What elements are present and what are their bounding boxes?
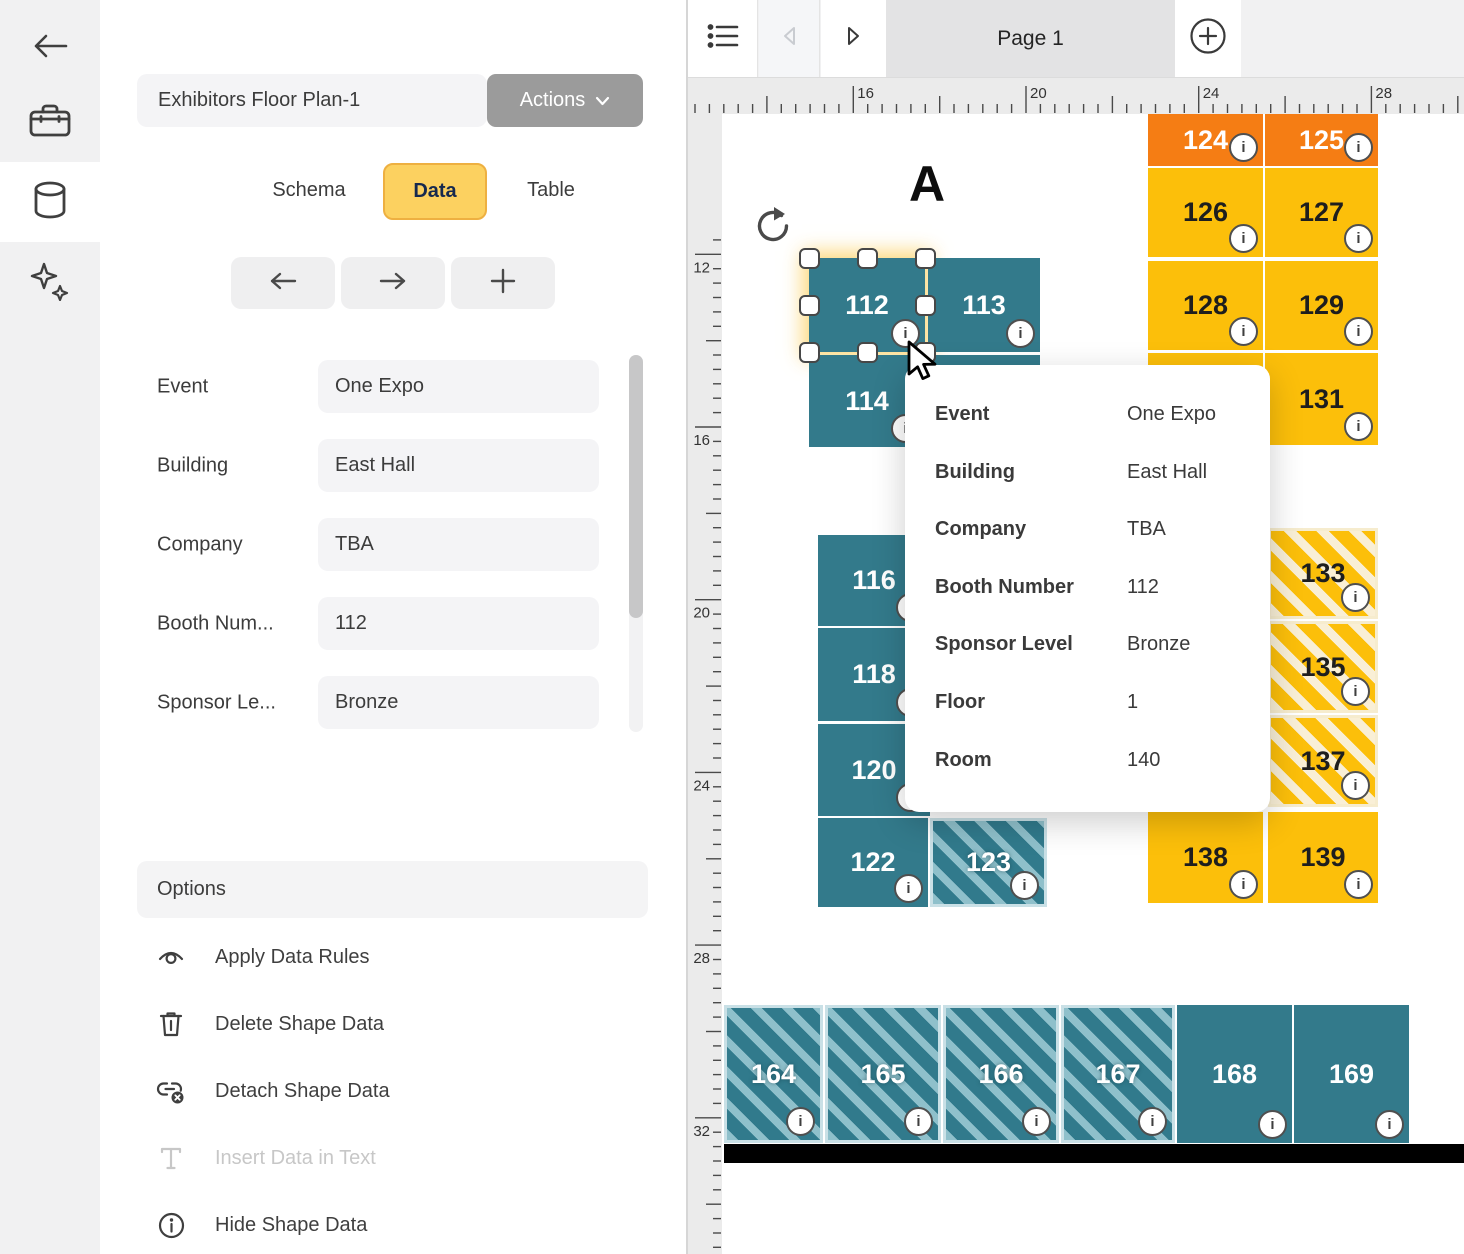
toolbox-icon	[26, 102, 74, 143]
booth-info-icon[interactable]: i	[1344, 133, 1373, 162]
field-row: CompanyTBA	[100, 518, 686, 571]
booth-info-icon[interactable]: i	[1006, 319, 1035, 348]
tooltip-label: Booth Number	[935, 576, 1074, 599]
tooltip-row: BuildingEast Hall	[905, 461, 1270, 491]
tooltip-value: One Expo	[1127, 403, 1216, 426]
booth-number: 135	[1300, 652, 1345, 683]
booth-number: 124	[1183, 125, 1228, 156]
sparkles-icon	[29, 261, 71, 306]
booth-165[interactable]: 165i	[825, 1005, 941, 1143]
previous-record-button[interactable]	[231, 257, 335, 309]
detach-link-icon	[155, 1075, 187, 1107]
tooltip-row: Sponsor LevelBronze	[905, 633, 1270, 663]
booth-number: 138	[1183, 842, 1228, 873]
tooltip-label: Room	[935, 749, 992, 772]
tooltip-value: 1	[1127, 691, 1138, 714]
sidebar-item-shapes[interactable]	[0, 82, 100, 162]
booth-number: 165	[860, 1059, 905, 1090]
tooltip-row: Booth Number112	[905, 576, 1270, 606]
selection-handle[interactable]	[857, 342, 878, 363]
selection-handle[interactable]	[915, 295, 936, 316]
database-icon	[29, 179, 71, 226]
booth-number: 139	[1300, 842, 1345, 873]
booth-number: 137	[1300, 746, 1345, 777]
tooltip-label: Floor	[935, 691, 985, 714]
next-record-button[interactable]	[341, 257, 445, 309]
booth-info-icon[interactable]: i	[1229, 224, 1258, 253]
booth-169[interactable]: 169i	[1294, 1005, 1409, 1143]
booth-number: 118	[852, 659, 896, 690]
tooltip-value: East Hall	[1127, 461, 1207, 484]
booth-info-icon[interactable]: i	[904, 1107, 933, 1136]
booth-info-icon[interactable]: i	[1344, 224, 1373, 253]
tooltip-label: Sponsor Level	[935, 633, 1073, 656]
booth-number: 127	[1299, 197, 1344, 228]
field-value-input[interactable]: One Expo	[318, 360, 599, 413]
booth-info-icon[interactable]: i	[1375, 1110, 1404, 1139]
wall-line[interactable]	[724, 1144, 1464, 1163]
dataset-title-input[interactable]: Exhibitors Floor Plan-1	[137, 74, 487, 127]
booth-123[interactable]: 123i	[930, 818, 1047, 907]
booth-166[interactable]: 166i	[943, 1005, 1059, 1143]
booth-number: 112	[845, 290, 889, 321]
field-row: EventOne Expo	[100, 360, 686, 413]
booth-164[interactable]: 164i	[724, 1005, 823, 1143]
booth-info-icon[interactable]: i	[1138, 1107, 1167, 1136]
selection-handle[interactable]	[857, 248, 878, 269]
field-label: Sponsor Le...	[157, 691, 276, 714]
booth-info-icon[interactable]: i	[1258, 1110, 1287, 1139]
selection-handle[interactable]	[799, 342, 820, 363]
previous-page-button[interactable]	[759, 0, 820, 77]
booth-125[interactable]: 125i	[1265, 114, 1378, 166]
next-page-button[interactable]	[821, 0, 886, 77]
svg-text:28: 28	[693, 950, 710, 967]
tooltip-value: Bronze	[1127, 633, 1190, 656]
field-value-input[interactable]: East Hall	[318, 439, 599, 492]
booth-124[interactable]: 124i	[1148, 114, 1263, 166]
mouse-cursor-icon	[901, 339, 941, 388]
triangle-left-icon	[781, 26, 797, 51]
booth-number: 131	[1299, 384, 1344, 415]
field-row: Booth Num...112	[100, 597, 686, 650]
booth-number: 129	[1299, 290, 1344, 321]
booth-info-icon[interactable]: i	[1344, 317, 1373, 346]
floor-plan-page[interactable]: A EventOne ExpoBuildingEast HallCompanyT…	[722, 114, 1464, 1254]
booth-138[interactable]: 138i	[1148, 812, 1263, 903]
selection-handle[interactable]	[799, 295, 820, 316]
vertical-ruler: 121620242832	[688, 114, 722, 1254]
booth-info-icon[interactable]: i	[894, 874, 923, 903]
tab-table[interactable]: Table	[520, 162, 582, 219]
booth-113[interactable]: 113i	[928, 258, 1040, 352]
dataset-title: Exhibitors Floor Plan-1	[158, 89, 360, 112]
horizontal-ruler: 16202428	[688, 78, 1464, 114]
svg-text:32: 32	[693, 1123, 710, 1140]
svg-text:24: 24	[693, 777, 710, 794]
svg-text:24: 24	[1203, 85, 1220, 102]
info-circle-icon	[155, 1209, 187, 1241]
tooltip-row: Floor1	[905, 691, 1270, 721]
tooltip-value: TBA	[1127, 518, 1166, 541]
tooltip-label: Building	[935, 461, 1015, 484]
booth-number: 113	[962, 290, 1006, 321]
canvas-area: Page 1 16202428 121620242832 A EventOne …	[688, 0, 1464, 1254]
tooltip-value: 112	[1127, 576, 1159, 599]
text-t-icon	[155, 1142, 187, 1174]
add-page-button[interactable]	[1175, 0, 1241, 77]
booth-127[interactable]: 127i	[1265, 168, 1378, 257]
field-value-input[interactable]: Bronze	[318, 676, 599, 729]
booth-number: 169	[1329, 1059, 1374, 1090]
booth-info-icon[interactable]: i	[1341, 677, 1370, 706]
sidebar-item-magic[interactable]	[0, 243, 100, 323]
trash-icon	[155, 1008, 187, 1040]
data-rules-eye-icon	[155, 941, 187, 973]
rotate-handle-icon[interactable]	[754, 206, 794, 253]
panel-scrollbar-thumb[interactable]	[629, 355, 643, 618]
option-detach-shape-data[interactable]: Detach Shape Data	[100, 1071, 640, 1111]
booth-info-icon[interactable]: i	[1344, 412, 1373, 441]
booth-info-icon[interactable]: i	[1341, 583, 1370, 612]
svg-text:28: 28	[1375, 85, 1392, 102]
booth-number: 122	[850, 847, 895, 878]
record-nav	[100, 257, 686, 309]
zone-label: A	[897, 155, 957, 213]
tooltip-row: EventOne Expo	[905, 403, 1270, 433]
tooltip-row: Room140	[905, 749, 1270, 779]
booth-128[interactable]: 128i	[1148, 261, 1263, 350]
tooltip-label: Company	[935, 518, 1026, 541]
tab-schema[interactable]: Schema	[265, 162, 353, 219]
page-list-icon	[707, 23, 739, 54]
booth-number: 133	[1300, 558, 1345, 589]
svg-text:16: 16	[857, 85, 874, 102]
tooltip-label: Event	[935, 403, 989, 426]
booth-number: 164	[751, 1059, 796, 1090]
booth-info-icon[interactable]: i	[786, 1107, 815, 1136]
booth-129[interactable]: 129i	[1265, 261, 1378, 350]
field-label: Company	[157, 533, 243, 556]
svg-text:20: 20	[1030, 85, 1047, 102]
field-value-input[interactable]: TBA	[318, 518, 599, 571]
field-value-input[interactable]: 112	[318, 597, 599, 650]
booth-info-icon[interactable]: i	[1229, 317, 1258, 346]
selection-handle[interactable]	[799, 248, 820, 269]
panel-tabs: SchemaDataTable	[100, 160, 686, 220]
booth-number: 123	[966, 847, 1011, 878]
booth-number: 168	[1212, 1059, 1257, 1090]
sidebar-item-data[interactable]	[0, 162, 100, 242]
option-apply-data-rules[interactable]: Apply Data Rules	[100, 937, 640, 977]
booth-number: 125	[1299, 125, 1344, 156]
options-header: Options	[137, 861, 648, 918]
page-tab[interactable]: Page 1	[886, 0, 1175, 77]
booth-133[interactable]: 133i	[1268, 528, 1378, 619]
triangle-right-icon	[846, 26, 862, 51]
sidebar-back-button[interactable]	[0, 8, 100, 88]
booth-135[interactable]: 135i	[1268, 621, 1378, 713]
booth-139[interactable]: 139i	[1268, 812, 1378, 903]
booth-167[interactable]: 167i	[1061, 1005, 1175, 1143]
booth-info-icon[interactable]: i	[1344, 870, 1373, 899]
tab-data[interactable]: Data	[383, 163, 487, 220]
option-delete-shape-data[interactable]: Delete Shape Data	[100, 1004, 640, 1044]
plus-circle-icon	[1188, 16, 1228, 61]
selection-handle[interactable]	[915, 248, 936, 269]
tooltip-value: 140	[1127, 749, 1160, 772]
field-label: Event	[157, 375, 208, 398]
svg-text:12: 12	[693, 259, 710, 276]
svg-text:16: 16	[693, 432, 710, 449]
tooltip-row: CompanyTBA	[905, 518, 1270, 548]
booth-info-icon[interactable]: i	[1022, 1107, 1051, 1136]
field-row: BuildingEast Hall	[100, 439, 686, 492]
booth-number: 116	[852, 565, 896, 596]
booth-number: 114	[845, 386, 889, 417]
svg-text:20: 20	[693, 605, 710, 622]
plus-icon	[490, 268, 516, 299]
booth-122[interactable]: 122i	[818, 818, 928, 907]
field-label: Booth Num...	[157, 612, 274, 635]
icon-sidebar	[0, 0, 100, 1254]
field-row: Sponsor Le...Bronze	[100, 676, 686, 729]
booth-number: 128	[1183, 290, 1228, 321]
app-window: Exhibitors Floor Plan-1 Actions SchemaDa…	[0, 0, 1464, 1254]
arrow-right-icon	[378, 271, 408, 296]
field-label: Building	[157, 454, 228, 477]
booth-number: 126	[1183, 197, 1228, 228]
booth-info-icon[interactable]: i	[1229, 870, 1258, 899]
page-list-button[interactable]	[688, 0, 758, 77]
booth-131[interactable]: 131i	[1265, 353, 1378, 445]
option-insert-data-in-text: Insert Data in Text	[100, 1138, 640, 1178]
data-panel: Exhibitors Floor Plan-1 Actions SchemaDa…	[100, 0, 686, 1254]
booth-number: 166	[978, 1059, 1023, 1090]
booth-112[interactable]: 112i	[809, 258, 925, 352]
shape-data-tooltip: EventOne ExpoBuildingEast HallCompanyTBA…	[905, 365, 1270, 812]
booth-126[interactable]: 126i	[1148, 168, 1263, 257]
option-hide-shape-data[interactable]: Hide Shape Data	[100, 1205, 640, 1245]
booth-info-icon[interactable]: i	[1010, 871, 1039, 900]
booth-info-icon[interactable]: i	[1341, 771, 1370, 800]
page-toolbar: Page 1	[688, 0, 1464, 78]
booth-number: 120	[851, 755, 896, 786]
booth-137[interactable]: 137i	[1268, 715, 1378, 807]
add-record-button[interactable]	[451, 257, 555, 309]
actions-button[interactable]: Actions	[487, 74, 643, 127]
back-arrow-icon	[31, 33, 69, 64]
booth-168[interactable]: 168i	[1177, 1005, 1292, 1143]
booth-number: 167	[1095, 1059, 1140, 1090]
booth-info-icon[interactable]: i	[1229, 133, 1258, 162]
arrow-left-icon	[268, 271, 298, 296]
chevron-down-icon	[595, 89, 610, 112]
